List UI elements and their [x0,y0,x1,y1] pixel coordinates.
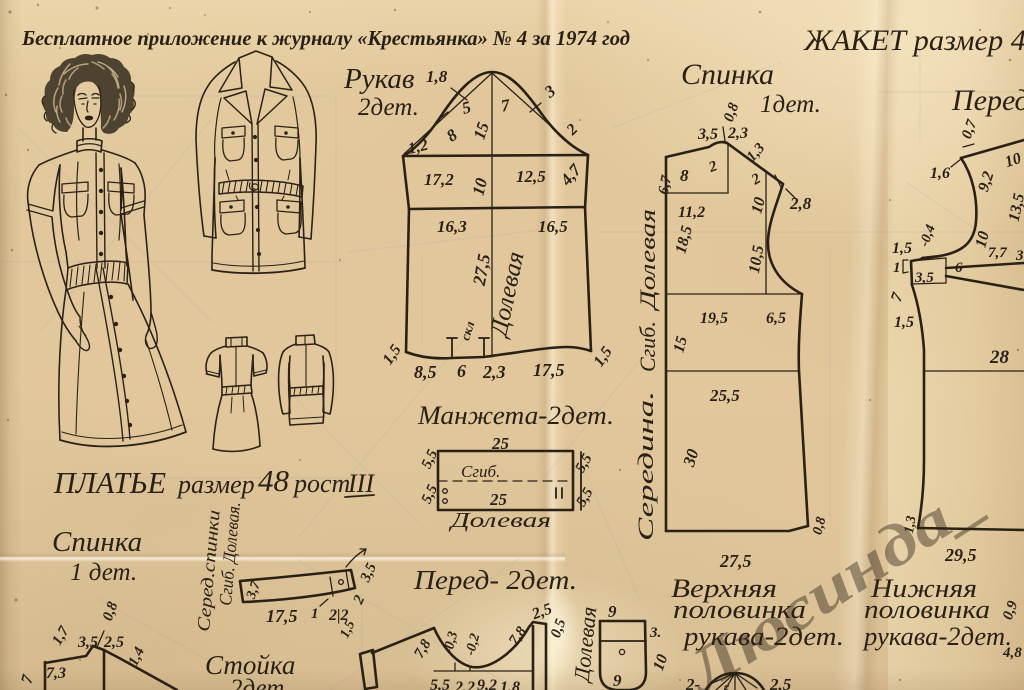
svg-text:12,5: 12,5 [516,167,546,186]
svg-text:27,5: 27,5 [719,551,752,571]
svg-text:16,3: 16,3 [437,217,467,236]
svg-text:10: 10 [468,176,491,198]
svg-text:25: 25 [491,434,510,453]
svg-text:0,8: 0,8 [810,516,829,537]
svg-text:10: 10 [650,652,671,673]
svg-text:1дет.: 1дет. [760,91,821,118]
svg-text:5,5: 5,5 [430,677,450,690]
svg-text:17,5: 17,5 [266,606,298,626]
svg-text:рукава-2дет.: рукава-2дет. [862,622,1012,651]
svg-text:19,5: 19,5 [700,310,728,327]
svg-text:Рукав: Рукав [343,63,415,95]
svg-text:8: 8 [443,125,461,146]
svg-text:7,8: 7,8 [411,636,434,661]
svg-text:Сгиб.: Сгиб. [635,321,660,372]
svg-text:0,7: 0,7 [959,117,981,141]
svg-text:3,7: 3,7 [244,578,265,601]
svg-text:10: 10 [1003,150,1023,171]
svg-text:5,5: 5,5 [572,451,595,476]
svg-text:3,5: 3,5 [77,634,98,651]
svg-text:0,9: 0,9 [1000,598,1022,622]
svg-text:7,7: 7,7 [988,245,1007,261]
svg-text:27,5: 27,5 [469,252,494,287]
svg-text:2: 2 [748,170,764,188]
svg-text:2,2: 2,2 [454,679,475,690]
svg-text:1: 1 [893,260,901,276]
svg-text:Долевая: Долевая [569,605,602,684]
svg-text:7: 7 [888,290,907,304]
svg-text:1,4: 1,4 [126,644,149,668]
svg-text:2: 2 [563,121,581,139]
svg-text:рост: рост [292,469,350,498]
svg-text:3: 3 [1015,248,1024,264]
svg-text:ПЛАТЬЕ: ПЛАТЬЕ [53,465,166,500]
svg-text:15: 15 [470,119,493,142]
svg-text:2,5: 2,5 [769,675,792,690]
svg-text:III: III [347,469,375,498]
svg-text:Спинка: Спинка [681,58,774,91]
svg-text:-0,3: -0,3 [441,630,461,655]
svg-text:2,5: 2,5 [529,600,555,623]
svg-text:2,5: 2,5 [103,634,124,651]
svg-text:48: 48 [258,463,290,498]
svg-text:3,5: 3,5 [357,560,380,585]
svg-text:2: 2 [350,593,368,608]
svg-text:Сгиб.: Сгиб. [461,462,500,481]
svg-text:0,5: 0,5 [548,616,570,640]
svg-text:9,2: 9,2 [477,677,497,690]
svg-text:2дет.: 2дет. [358,94,419,121]
svg-text:6: 6 [955,260,963,276]
svg-text:Середина.: Середина. [633,391,658,541]
svg-text:Перед- 2дет.: Перед- 2дет. [413,565,577,595]
svg-text:3,5: 3,5 [697,126,718,143]
svg-text:3,5: 3,5 [914,270,934,286]
svg-text:7,8: 7,8 [506,624,530,649]
svg-text:1,3: 1,3 [744,140,769,165]
svg-text:8: 8 [680,166,689,185]
svg-text:половинка: половинка [864,595,990,624]
svg-text:7: 7 [18,672,37,685]
svg-text:9,2: 9,2 [975,169,997,193]
svg-text:ЖАКЕТ размер 4: ЖАКЕТ размер 4 [803,24,1024,57]
svg-text:9: 9 [608,602,617,621]
svg-text:18,5: 18,5 [672,224,696,255]
svg-text:Манжета-2дет.: Манжета-2дет. [417,401,614,430]
svg-text:7: 7 [499,95,512,115]
svg-text:17,5: 17,5 [533,360,565,380]
svg-text:10,5: 10,5 [746,244,768,275]
svg-text:1,8: 1,8 [500,679,520,690]
svg-text:0,8: 0,8 [100,599,122,623]
svg-text:3: 3 [540,81,560,102]
svg-text:6: 6 [457,361,466,381]
svg-text:скл: скл [457,319,477,342]
svg-text:2дет.: 2дет. [230,675,291,690]
svg-text:3.: 3. [649,625,661,641]
svg-text:16,5: 16,5 [538,217,568,236]
svg-text:-0,2: -0,2 [463,632,483,657]
svg-text:13,5: 13,5 [1006,192,1024,223]
svg-text:11,2: 11,2 [678,204,705,221]
svg-text:5,5: 5,5 [573,485,596,510]
svg-text:5: 5 [460,97,474,118]
svg-text:25,5: 25,5 [709,386,740,405]
svg-text:25: 25 [489,490,508,509]
svg-text:17,2: 17,2 [424,170,454,189]
svg-text:Долевая: Долевая [448,508,551,532]
svg-text:1,6: 1,6 [930,165,950,182]
svg-text:Перед-: Перед- [951,84,1024,117]
svg-text:30: 30 [679,446,703,469]
svg-text:-0,4: -0,4 [917,223,939,249]
svg-text:0,8: 0,8 [721,100,743,124]
svg-text:1,8: 1,8 [426,67,448,86]
svg-text:2,8: 2,8 [789,194,812,213]
svg-text:Спинка: Спинка [52,526,142,558]
svg-text:2: 2 [706,158,720,176]
svg-text:1,5: 1,5 [379,342,404,368]
svg-text:15: 15 [670,334,691,354]
svg-text:6,5: 6,5 [766,310,786,327]
svg-text:Бесплатное приложение к журнал: Бесплатное приложение к журналу «Крестья… [21,26,630,50]
svg-text:1,5: 1,5 [590,344,615,370]
svg-text:2,3: 2,3 [727,125,748,142]
svg-text:1 дет.: 1 дет. [70,559,137,586]
svg-text:1,5: 1,5 [894,314,914,331]
svg-text:4,7: 4,7 [556,159,586,189]
svg-text:2,3: 2,3 [482,362,506,382]
svg-text:1,7: 1,7 [49,623,72,648]
svg-text:8,5: 8,5 [414,362,437,382]
svg-text:1,5: 1,5 [892,240,912,257]
svg-text:размер: размер [176,470,255,499]
svg-text:28: 28 [989,347,1010,368]
svg-text:7,3: 7,3 [46,665,66,682]
svg-text:9: 9 [613,671,622,690]
svg-text:1: 1 [311,606,319,622]
svg-text:Долевая: Долевая [635,209,660,312]
